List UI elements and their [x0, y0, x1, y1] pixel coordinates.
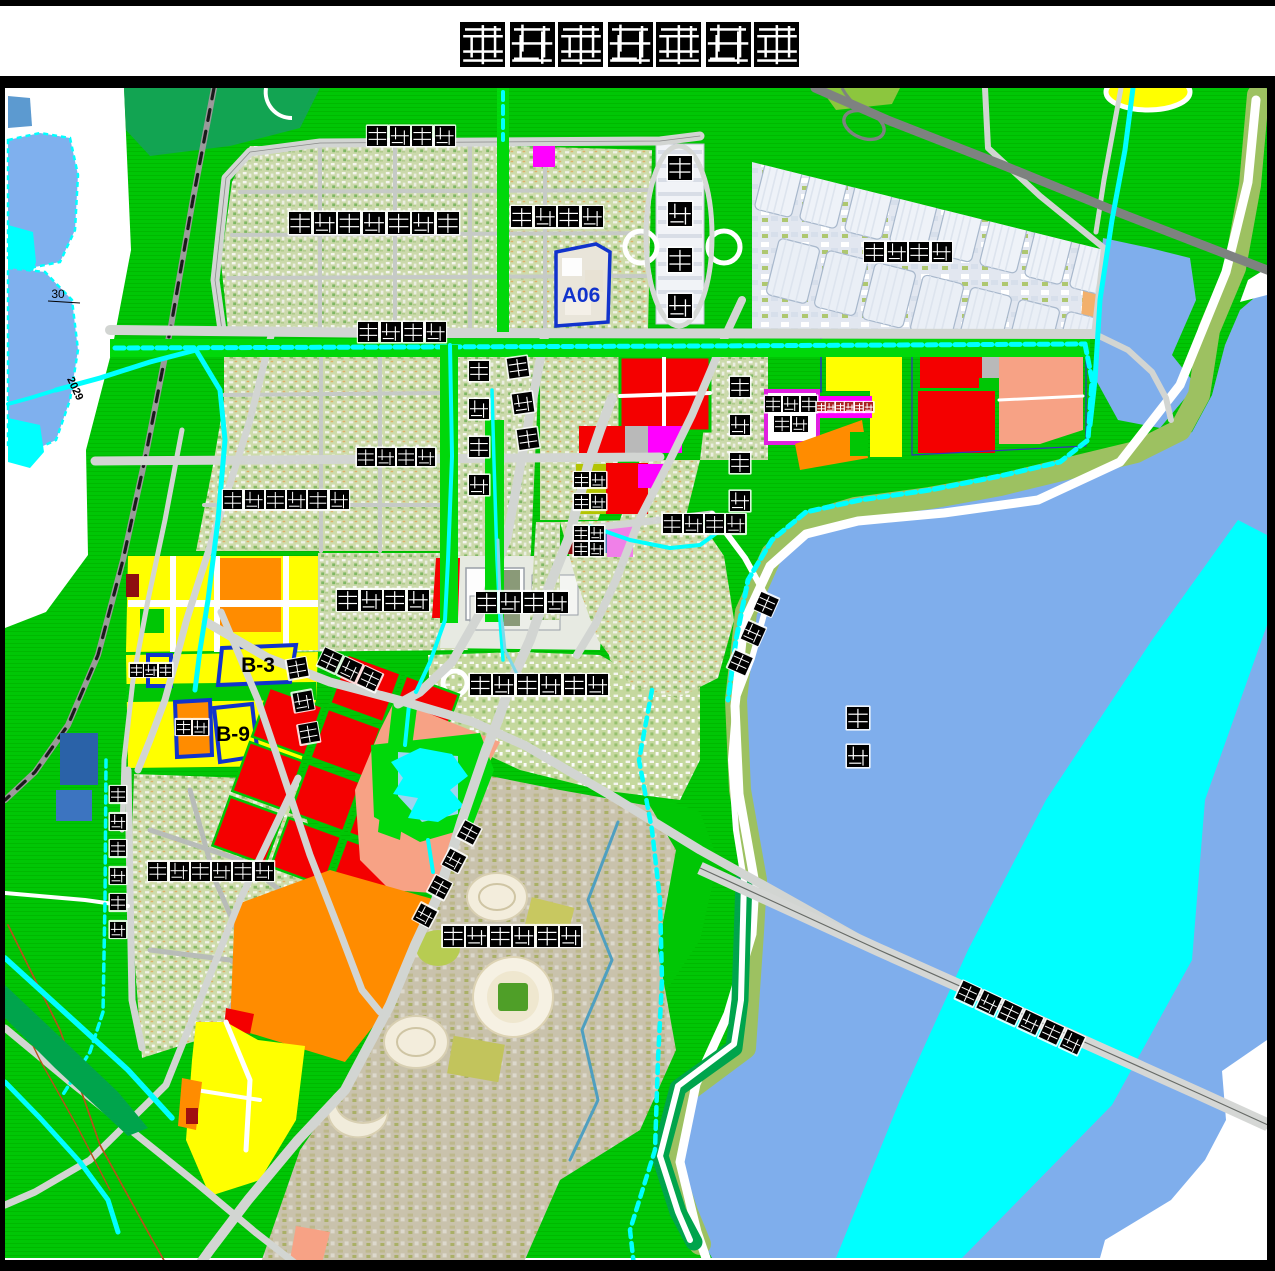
svg-text:A06: A06: [562, 284, 601, 307]
svg-text:B-3: B-3: [241, 654, 275, 677]
svg-text:30: 30: [51, 287, 65, 301]
svg-text:B-9: B-9: [216, 723, 250, 746]
